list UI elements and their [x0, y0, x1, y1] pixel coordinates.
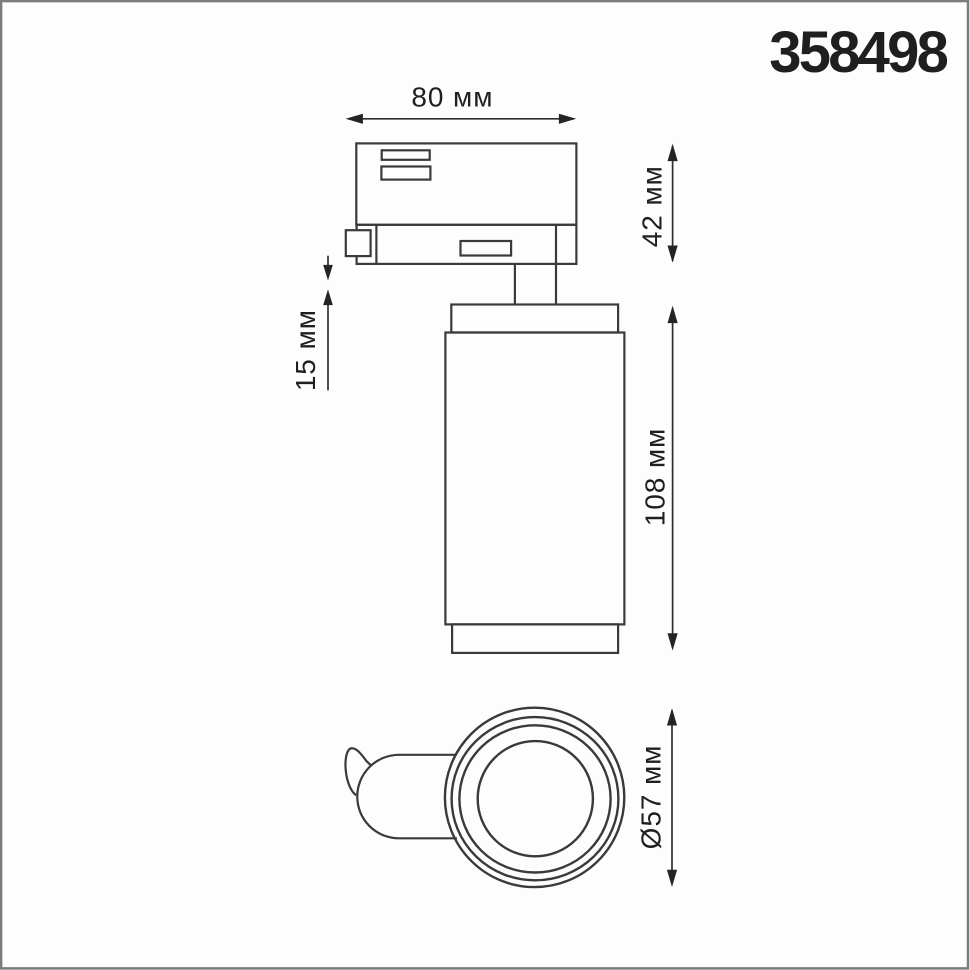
- svg-text:108 мм: 108 мм: [640, 428, 671, 526]
- svg-text:15 мм: 15 мм: [290, 309, 321, 391]
- svg-text:80 мм: 80 мм: [411, 82, 493, 113]
- svg-text:42 мм: 42 мм: [637, 165, 668, 247]
- svg-text:Ø57 мм: Ø57 мм: [636, 745, 667, 850]
- svg-text:358498: 358498: [769, 20, 947, 85]
